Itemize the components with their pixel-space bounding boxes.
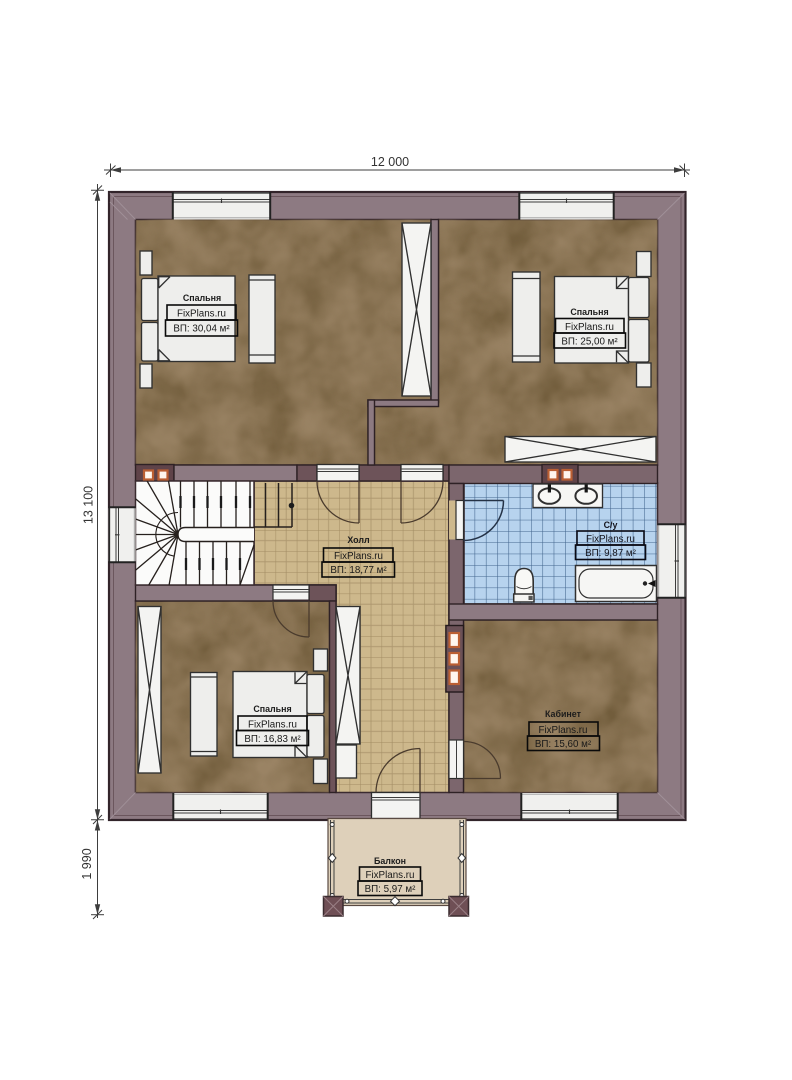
svg-text:ВП: 9,87 м²: ВП: 9,87 м²	[585, 548, 637, 559]
svg-text:Спальня: Спальня	[570, 307, 608, 317]
svg-text:ВП: 16,83 м²: ВП: 16,83 м²	[244, 734, 301, 745]
svg-text:С/у: С/у	[604, 520, 618, 530]
svg-text:ВП: 25,00 м²: ВП: 25,00 м²	[561, 337, 618, 348]
svg-text:1 990: 1 990	[80, 848, 94, 879]
svg-text:Спальня: Спальня	[183, 293, 221, 303]
svg-text:Спальня: Спальня	[253, 704, 291, 714]
svg-text:ВП: 30,04 м²: ВП: 30,04 м²	[173, 324, 230, 335]
svg-text:ВП: 5,97 м²: ВП: 5,97 м²	[365, 884, 417, 895]
svg-text:FixPlans.ru: FixPlans.ru	[366, 870, 415, 881]
svg-text:Кабинет: Кабинет	[545, 709, 582, 719]
svg-text:FixPlans.ru: FixPlans.ru	[586, 534, 635, 545]
svg-text:Холл: Холл	[347, 535, 370, 545]
svg-text:Балкон: Балкон	[374, 856, 406, 866]
svg-text:ВП: 18,77 м²: ВП: 18,77 м²	[330, 565, 387, 576]
svg-text:FixPlans.ru: FixPlans.ru	[565, 322, 614, 333]
svg-text:13 100: 13 100	[82, 486, 96, 524]
svg-text:FixPlans.ru: FixPlans.ru	[177, 309, 226, 320]
svg-text:12 000: 12 000	[371, 155, 409, 169]
svg-text:FixPlans.ru: FixPlans.ru	[334, 551, 383, 562]
svg-text:FixPlans.ru: FixPlans.ru	[248, 720, 297, 731]
svg-text:ВП: 15,60 м²: ВП: 15,60 м²	[535, 739, 592, 750]
svg-text:FixPlans.ru: FixPlans.ru	[539, 725, 588, 736]
